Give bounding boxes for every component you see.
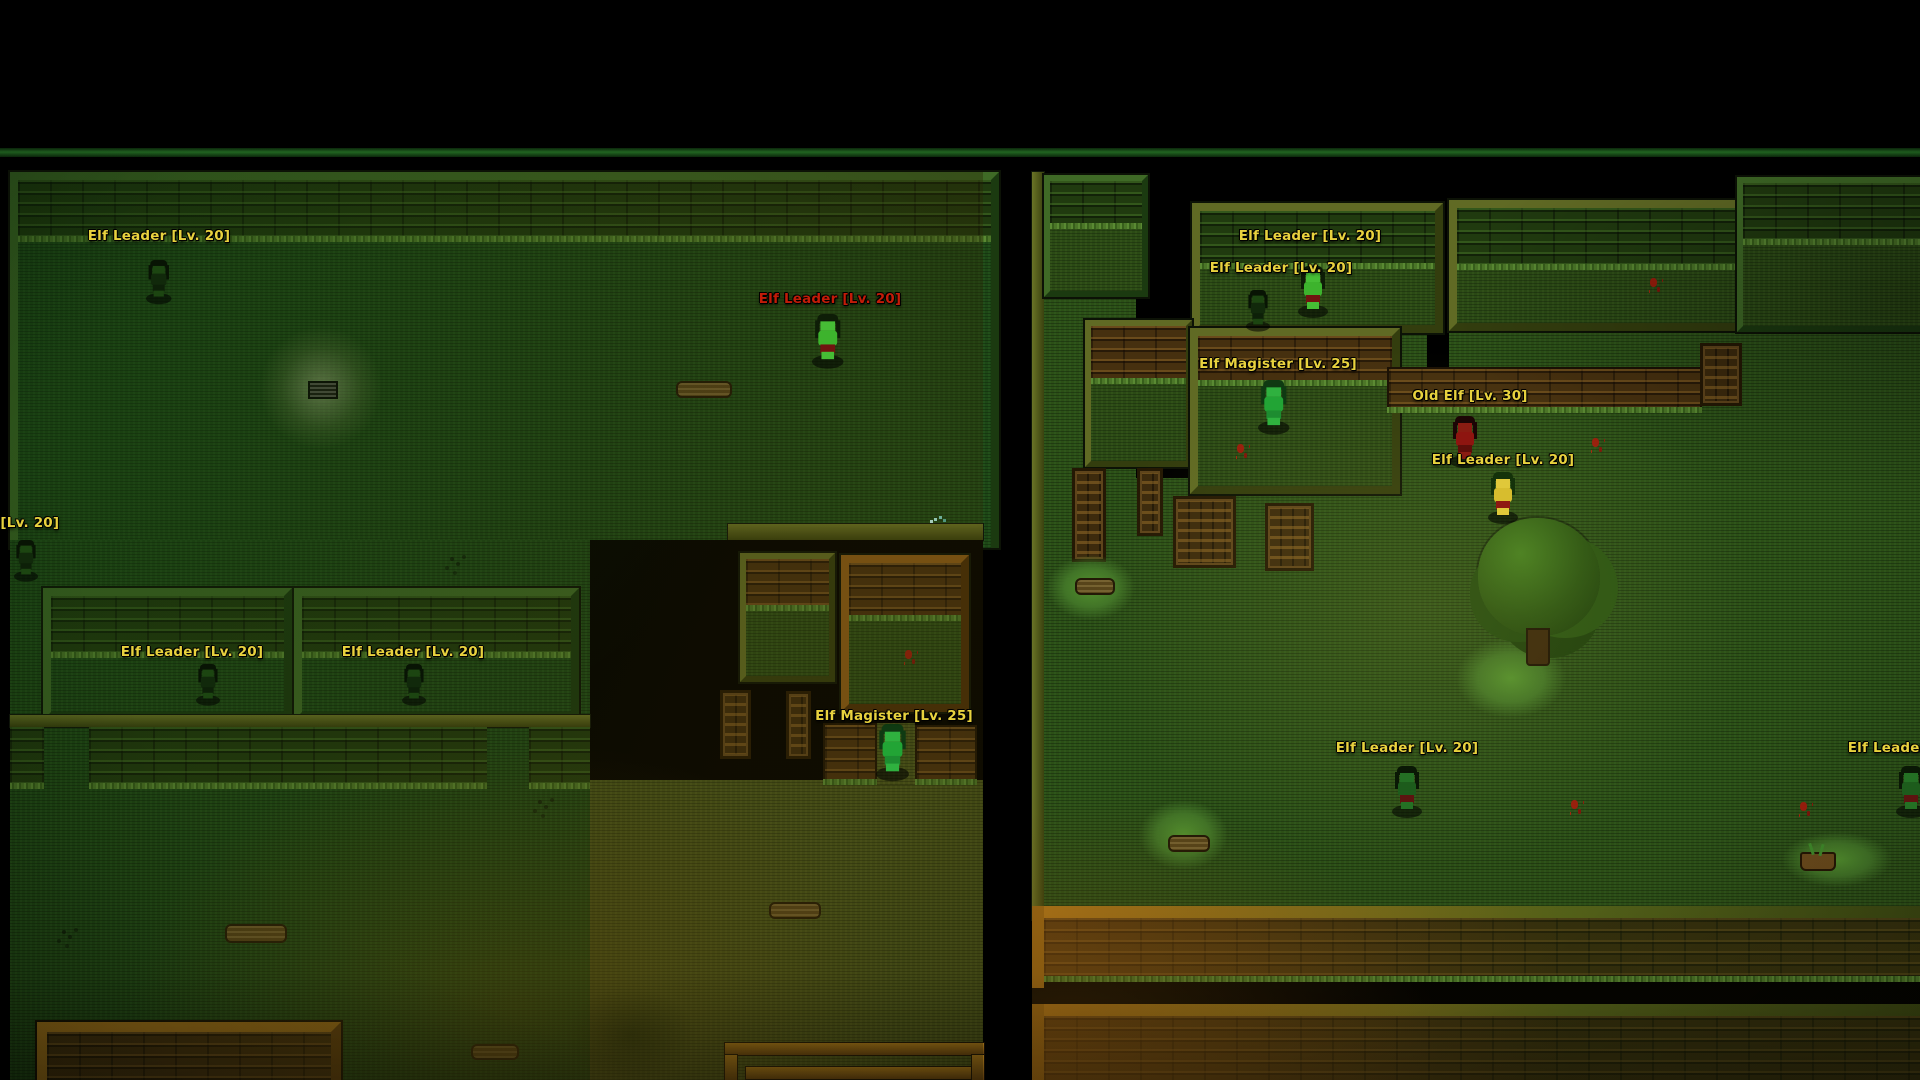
npc-label: Elf Leader [Lv. 20] <box>1336 740 1479 756</box>
npc-legs <box>21 569 31 575</box>
npc-body <box>1902 782 1920 796</box>
npc-label: Old Elf [Lv. 30] <box>1412 388 1527 404</box>
npc-body <box>1264 397 1283 412</box>
npc-sprite[interactable] <box>196 664 220 706</box>
npc-head <box>153 266 165 274</box>
npc-label: Elf Magister [Lv. 25] <box>1199 356 1357 372</box>
npc-sprite[interactable] <box>1896 766 1920 818</box>
npc-sprite[interactable] <box>1258 380 1290 435</box>
entities-layer: Elf Leader [Lv. 20] Elf Leader [Lv. 20] … <box>0 0 1920 1080</box>
npc-body <box>1494 488 1512 502</box>
npc-head <box>1252 296 1263 303</box>
npc-head <box>1400 773 1414 782</box>
game-viewport: Elf Leader [Lv. 20] Elf Leader [Lv. 20] … <box>0 0 1920 1080</box>
npc-legs <box>1253 319 1263 325</box>
npc-sprite[interactable] <box>876 724 909 781</box>
npc-label: Elf Leader [Lv. 20] <box>1239 228 1382 244</box>
npc-label: Elf Leader [Lv. 20] <box>342 644 485 660</box>
npc-sprite[interactable] <box>1392 766 1422 818</box>
npc-body <box>1304 282 1322 296</box>
npc-head <box>202 670 213 677</box>
npc-sprite[interactable] <box>1246 290 1270 332</box>
npc-legs <box>154 291 164 297</box>
npc-legs <box>1401 802 1413 809</box>
npc-body <box>818 331 837 346</box>
npc-legs <box>203 693 213 699</box>
npc-body <box>883 742 903 757</box>
npc-head <box>20 546 31 553</box>
npc-head <box>1266 387 1281 396</box>
npc-legs <box>821 352 834 359</box>
npc-head <box>1904 773 1918 782</box>
npc-label: Elf Leader [Lv. 20] <box>88 228 231 244</box>
npc-sprite[interactable] <box>812 314 844 369</box>
npc-body <box>1398 782 1416 796</box>
npc-label: Elf Leader [Lv. 20] <box>1210 260 1353 276</box>
npc-head <box>1458 423 1472 432</box>
npc-sprite[interactable] <box>146 260 172 304</box>
npc-label: Elf Leader [Lv. 20] <box>1432 452 1575 468</box>
npc-legs <box>1497 508 1509 515</box>
npc-label: Elf Leader [Lv. 20] <box>1848 740 1920 756</box>
npc-head <box>1496 479 1510 488</box>
npc-label: Elf Leader [Lv. 20] <box>0 515 59 531</box>
npc-legs <box>1267 418 1280 425</box>
npc-head <box>408 670 419 677</box>
npc-label: Elf Leader [Lv. 20] <box>759 291 902 307</box>
npc-sprite[interactable] <box>14 540 38 582</box>
npc-legs <box>409 693 419 699</box>
npc-label: Elf Magister [Lv. 25] <box>815 708 973 724</box>
npc-legs <box>1307 302 1319 309</box>
npc-head <box>885 732 900 742</box>
npc-body <box>1456 432 1474 446</box>
npc-head <box>820 321 835 330</box>
npc-legs <box>1905 802 1917 809</box>
npc-legs <box>886 764 899 772</box>
npc-label: Elf Leader [Lv. 20] <box>121 644 264 660</box>
npc-sprite[interactable] <box>1488 472 1518 524</box>
npc-sprite[interactable] <box>402 664 426 706</box>
